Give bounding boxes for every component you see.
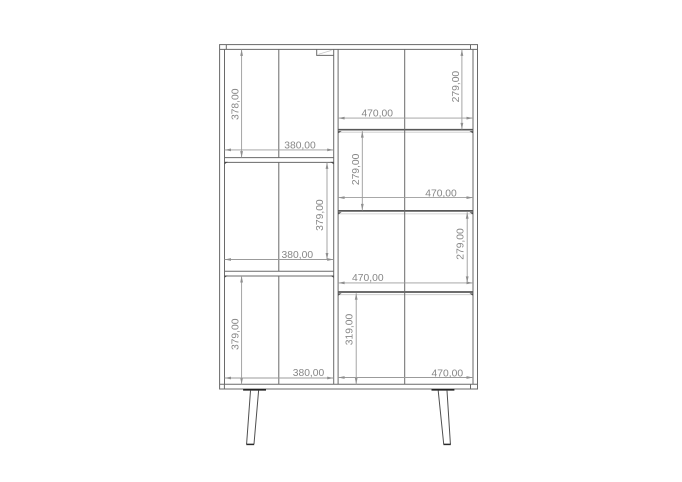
svg-text:470,00: 470,00: [361, 108, 393, 119]
svg-text:379,00: 379,00: [230, 318, 241, 350]
svg-text:470,00: 470,00: [425, 188, 457, 199]
svg-text:470,00: 470,00: [432, 368, 464, 379]
svg-text:379,00: 379,00: [315, 199, 326, 231]
svg-text:319,00: 319,00: [344, 313, 355, 345]
svg-text:279,00: 279,00: [351, 153, 362, 185]
svg-text:380,00: 380,00: [284, 141, 316, 152]
svg-text:279,00: 279,00: [456, 228, 467, 260]
svg-text:378,00: 378,00: [230, 88, 241, 120]
svg-text:279,00: 279,00: [451, 71, 462, 103]
svg-text:380,00: 380,00: [293, 368, 325, 379]
svg-text:380,00: 380,00: [282, 250, 314, 261]
svg-text:470,00: 470,00: [352, 273, 384, 284]
